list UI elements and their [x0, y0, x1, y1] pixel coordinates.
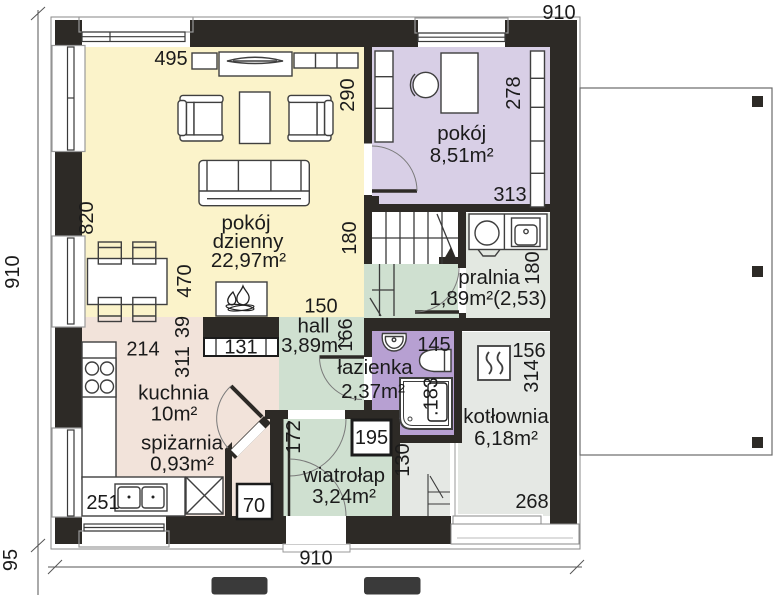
svg-text:910: 910 — [299, 548, 332, 570]
svg-text:195: 195 — [355, 427, 388, 449]
svg-text:314: 314 — [521, 359, 543, 392]
svg-text:8,51m²: 8,51m² — [430, 144, 494, 167]
svg-text:kotłownia: kotłownia — [463, 405, 549, 428]
svg-text:156: 156 — [512, 340, 545, 362]
svg-text:70: 70 — [243, 495, 265, 517]
svg-text:pralnia: pralnia — [458, 266, 520, 289]
svg-text:910: 910 — [542, 2, 575, 24]
svg-text:820: 820 — [76, 201, 98, 234]
svg-text:1,89m²(2,53): 1,89m²(2,53) — [429, 287, 546, 310]
svg-text:6,18m²: 6,18m² — [474, 427, 538, 450]
svg-text:0,93m²: 0,93m² — [150, 453, 214, 476]
svg-text:145: 145 — [417, 334, 450, 356]
svg-text:3,24m²: 3,24m² — [312, 485, 376, 508]
svg-text:470: 470 — [174, 264, 196, 297]
svg-text:278: 278 — [503, 76, 525, 109]
svg-text:495: 495 — [154, 48, 187, 70]
svg-text:2,37m²: 2,37m² — [341, 380, 405, 403]
svg-text:22,97m²: 22,97m² — [211, 249, 286, 272]
svg-text:150: 150 — [304, 296, 337, 318]
svg-text:172: 172 — [283, 420, 305, 453]
svg-text:290: 290 — [337, 78, 359, 111]
svg-text:268: 268 — [515, 491, 548, 513]
svg-text:95: 95 — [0, 549, 22, 571]
svg-text:łazienka: łazienka — [337, 356, 413, 379]
svg-text:.183: .183 — [421, 377, 443, 416]
svg-text:kuchnia: kuchnia — [138, 382, 209, 405]
svg-text:910: 910 — [2, 255, 24, 288]
svg-text:251: 251 — [86, 492, 119, 514]
svg-text:10m²: 10m² — [151, 403, 198, 426]
svg-text:131: 131 — [224, 337, 257, 359]
svg-text:180: 180 — [522, 251, 544, 284]
svg-text:180: 180 — [339, 221, 361, 254]
svg-text:39: 39 — [172, 316, 194, 338]
svg-text:130: 130 — [392, 443, 414, 476]
svg-text:166: 166 — [335, 318, 357, 351]
svg-text:wiatrołap: wiatrołap — [302, 464, 385, 487]
svg-text:214: 214 — [126, 339, 159, 361]
svg-text:313: 313 — [493, 184, 526, 206]
svg-text:311: 311 — [172, 346, 194, 378]
svg-text:spiżarnia: spiżarnia — [141, 432, 224, 455]
svg-text:pokój: pokój — [437, 122, 486, 145]
